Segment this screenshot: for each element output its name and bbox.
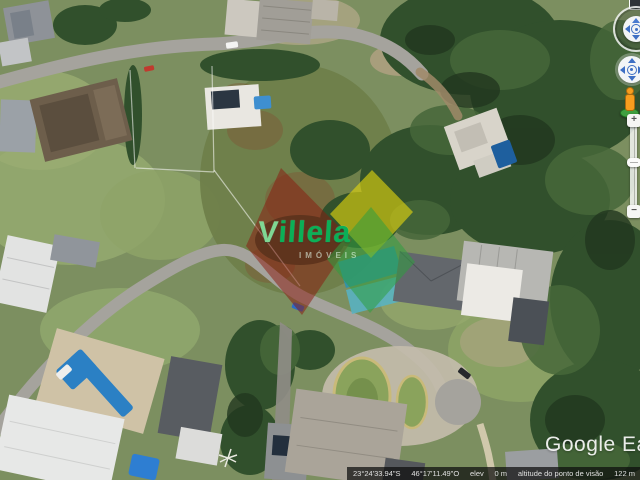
look-left-arrow-icon[interactable]: [625, 25, 630, 33]
aerial-map-canvas[interactable]: [0, 0, 640, 480]
look-center-icon[interactable]: [631, 24, 640, 34]
pegman-icon: [625, 94, 635, 111]
google-earth-logo: Google Earth: [545, 433, 640, 457]
swimming-pool: [254, 95, 272, 109]
zoom-in-button[interactable]: +: [627, 114, 640, 127]
zoom-out-button[interactable]: −: [627, 205, 640, 218]
look-down-arrow-icon[interactable]: [632, 35, 640, 40]
house-roof: [3, 0, 55, 45]
pan-up-arrow-icon[interactable]: [628, 58, 636, 63]
look-up-arrow-icon[interactable]: [632, 18, 640, 23]
status-elevation-label: elev: [470, 469, 484, 478]
status-bar: 23°24'33.94"S 46°17'11.49"O elev 0 m alt…: [347, 467, 640, 480]
look-joystick-icon[interactable]: [623, 16, 640, 42]
status-longitude: 46°17'11.49"O: [411, 469, 459, 478]
building-roof: [311, 0, 339, 21]
pan-down-arrow-icon[interactable]: [628, 76, 636, 81]
status-view-altitude-value: 122 m: [614, 469, 635, 478]
building-roof: [256, 0, 313, 44]
pan-joystick-control[interactable]: [618, 56, 640, 83]
zoom-slider[interactable]: + −: [626, 114, 640, 218]
status-elevation-value: 0 m: [495, 469, 508, 478]
status-latitude: 23°24'33.94"S: [353, 469, 401, 478]
building-roof: [224, 0, 261, 37]
google-earth-window: Villela IMÓVEIS + − Google Earth 23°24'3…: [0, 0, 640, 480]
satellite-imagery: [0, 0, 640, 480]
status-view-altitude-label: altitude do ponto de visão: [518, 469, 603, 478]
cul-de-sac: [435, 379, 481, 425]
house-roof: [0, 99, 37, 152]
pan-left-arrow-icon[interactable]: [620, 66, 625, 74]
pegman-head-icon: [626, 87, 634, 95]
zoom-slider-handle[interactable]: [627, 158, 640, 167]
pan-center-icon[interactable]: [627, 65, 637, 75]
house-dark-roof: [393, 251, 469, 310]
